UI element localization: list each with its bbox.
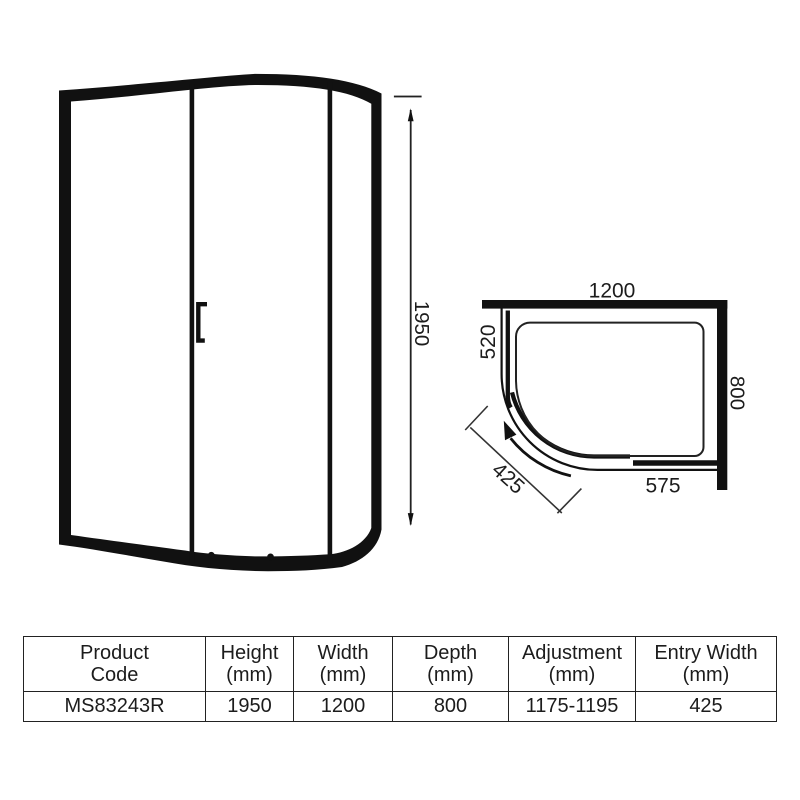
svg-text:425: 425	[487, 458, 528, 499]
svg-text:1200: 1200	[589, 279, 636, 302]
svg-text:575: 575	[645, 475, 680, 498]
svg-text:800: 800	[726, 376, 749, 410]
svg-text:520: 520	[477, 324, 500, 359]
svg-text:1950: 1950	[410, 301, 433, 347]
